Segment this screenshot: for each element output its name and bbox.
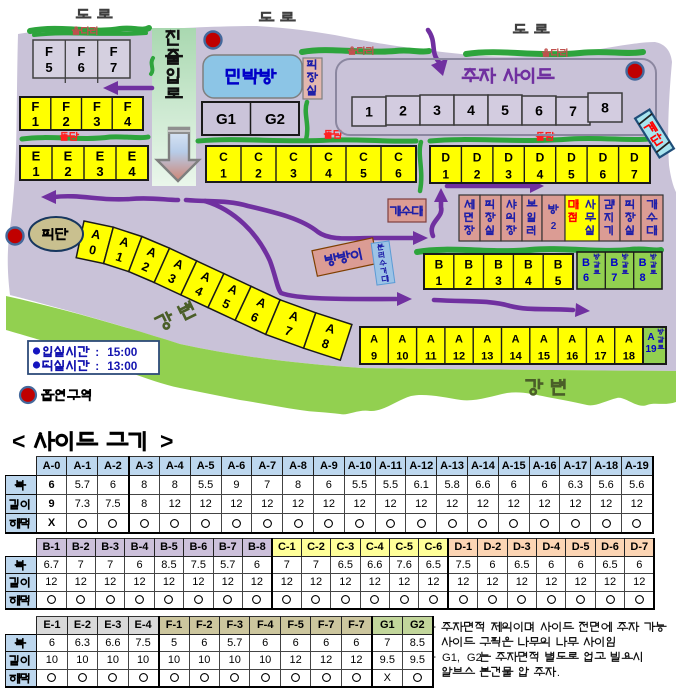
svg-text:D: D <box>473 151 482 165</box>
svg-text:6: 6 <box>583 272 589 284</box>
svg-text:F: F <box>31 99 39 114</box>
svg-text:A: A <box>597 334 605 346</box>
svg-text:6: 6 <box>78 60 85 75</box>
svg-text:4: 4 <box>537 168 544 182</box>
svg-text:F: F <box>62 99 70 114</box>
svg-text:3: 3 <box>433 102 441 118</box>
svg-text:3: 3 <box>290 167 297 181</box>
svg-text:G2: G2 <box>265 111 285 128</box>
svg-text:B: B <box>524 258 533 272</box>
svg-text:4: 4 <box>128 164 136 179</box>
svg-text:A: A <box>647 332 654 343</box>
svg-text:2: 2 <box>465 274 472 288</box>
svg-text:C: C <box>254 150 263 164</box>
svg-text:15: 15 <box>538 351 550 363</box>
svg-text:G1,: G1, <box>442 652 460 664</box>
svg-text:D: D <box>567 151 576 165</box>
svg-text:G1: G1 <box>216 111 236 128</box>
svg-text:8: 8 <box>640 272 646 284</box>
svg-text:B: B <box>610 257 618 269</box>
svg-text:16: 16 <box>566 351 578 363</box>
svg-text:10: 10 <box>396 351 408 363</box>
svg-text:B: B <box>582 257 590 269</box>
svg-text:6: 6 <box>600 168 607 182</box>
svg-text:E: E <box>96 148 105 163</box>
svg-text:F: F <box>77 44 85 59</box>
svg-text:6: 6 <box>535 103 543 119</box>
svg-text:B: B <box>639 257 647 269</box>
svg-text:E: E <box>32 148 41 163</box>
svg-text:B: B <box>494 258 503 272</box>
svg-text:12: 12 <box>453 351 465 363</box>
svg-text:-: - <box>432 649 436 663</box>
svg-text:4: 4 <box>325 167 332 181</box>
svg-text:1: 1 <box>442 168 449 182</box>
svg-text:A: A <box>455 334 463 346</box>
svg-text:.: . <box>557 667 560 679</box>
svg-text:D: D <box>441 151 450 165</box>
svg-text:A: A <box>625 334 633 346</box>
svg-text::: : <box>95 345 99 359</box>
svg-text:18: 18 <box>623 351 635 363</box>
svg-text:19: 19 <box>645 344 657 355</box>
svg-text:>: > <box>160 428 173 454</box>
svg-text:E: E <box>64 148 73 163</box>
svg-text:C: C <box>394 150 403 164</box>
svg-text:A: A <box>540 334 548 346</box>
svg-text:3: 3 <box>495 274 502 288</box>
svg-text:<: < <box>12 428 25 454</box>
svg-text:B: B <box>554 258 563 272</box>
svg-text:E: E <box>128 148 137 163</box>
svg-text:4: 4 <box>525 274 532 288</box>
svg-text:13:00: 13:00 <box>107 359 138 373</box>
svg-text:5: 5 <box>45 60 52 75</box>
svg-text:2: 2 <box>62 114 69 129</box>
svg-text:9: 9 <box>371 351 377 363</box>
svg-text:15:00: 15:00 <box>107 345 138 359</box>
svg-text:2: 2 <box>399 103 407 119</box>
svg-text:5: 5 <box>501 102 509 118</box>
svg-text:13: 13 <box>481 351 493 363</box>
svg-text:A: A <box>398 334 406 346</box>
svg-text:6: 6 <box>395 167 402 181</box>
svg-text:F: F <box>110 44 118 59</box>
svg-text:B: B <box>464 258 473 272</box>
svg-text:7: 7 <box>611 272 617 284</box>
svg-text:G2: G2 <box>467 652 482 664</box>
svg-text:A: A <box>370 334 378 346</box>
svg-text:A: A <box>568 334 576 346</box>
svg-text:3: 3 <box>505 168 512 182</box>
svg-text:F: F <box>93 99 101 114</box>
svg-text::: : <box>95 359 99 373</box>
svg-text:D: D <box>599 151 608 165</box>
svg-text:3: 3 <box>93 114 100 129</box>
svg-text:D: D <box>504 151 513 165</box>
svg-text:1: 1 <box>32 114 39 129</box>
svg-text:F: F <box>45 44 53 59</box>
svg-text:C: C <box>324 150 333 164</box>
svg-text:-: - <box>432 619 436 633</box>
svg-text:C: C <box>289 150 298 164</box>
svg-text:17: 17 <box>594 351 606 363</box>
svg-text:1: 1 <box>436 274 443 288</box>
svg-text:1: 1 <box>365 104 373 120</box>
svg-text:5: 5 <box>360 167 367 181</box>
svg-text:A: A <box>483 334 491 346</box>
svg-text:5: 5 <box>568 168 575 182</box>
svg-text:2: 2 <box>474 168 481 182</box>
svg-text:A: A <box>512 334 520 346</box>
svg-text:8: 8 <box>601 100 609 116</box>
svg-text:B: B <box>435 258 444 272</box>
svg-text:2: 2 <box>255 167 262 181</box>
svg-text:C: C <box>359 150 368 164</box>
svg-text:4: 4 <box>467 102 475 118</box>
svg-text:3: 3 <box>96 164 103 179</box>
svg-text:F: F <box>124 99 132 114</box>
svg-text:A: A <box>427 334 435 346</box>
svg-text:7: 7 <box>569 103 577 119</box>
svg-text:D: D <box>536 151 545 165</box>
svg-text:1: 1 <box>220 167 227 181</box>
svg-text:1: 1 <box>32 164 39 179</box>
svg-text:5: 5 <box>555 274 562 288</box>
svg-text:2: 2 <box>64 164 71 179</box>
svg-text:14: 14 <box>509 351 522 363</box>
svg-text:7: 7 <box>631 168 638 182</box>
svg-text:D: D <box>630 151 639 165</box>
svg-text:11: 11 <box>425 351 437 363</box>
svg-text:7: 7 <box>110 60 117 75</box>
svg-text:2: 2 <box>551 221 557 232</box>
svg-text:4: 4 <box>124 114 132 129</box>
svg-text:C: C <box>219 150 228 164</box>
